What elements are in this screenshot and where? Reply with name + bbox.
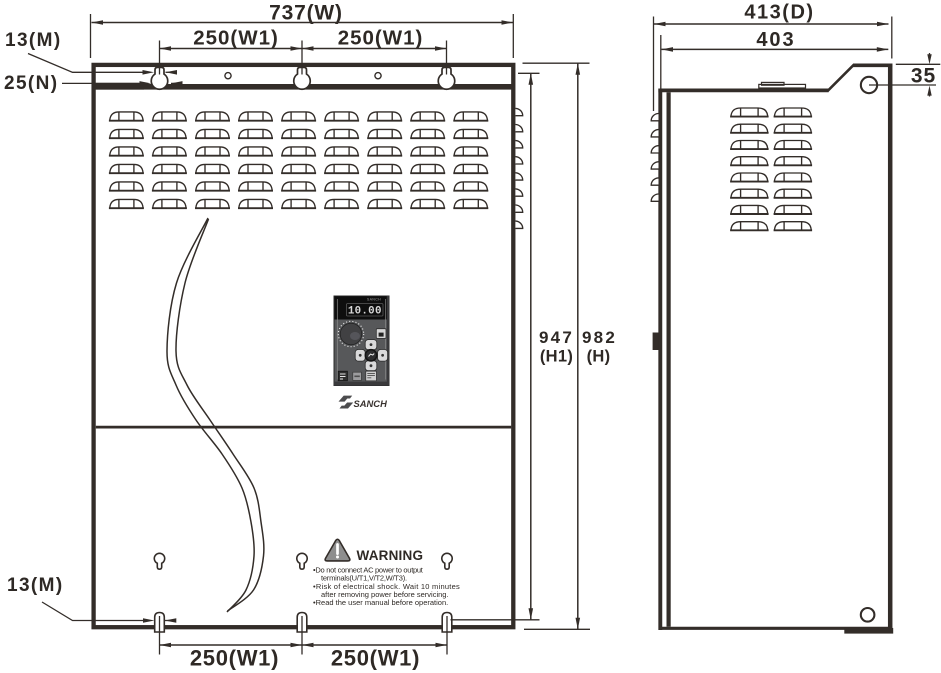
svg-text:SANCH: SANCH (354, 398, 388, 409)
svg-text:25(N): 25(N) (4, 73, 59, 94)
svg-text:35: 35 (911, 65, 936, 88)
svg-text:(H1): (H1) (540, 348, 573, 366)
svg-text:403: 403 (756, 29, 795, 51)
svg-text:after removing power before se: after removing power before servicing. (321, 590, 449, 599)
svg-text:terminals(U/T1,V/T2,W/T3).: terminals(U/T1,V/T2,W/T3). (321, 574, 407, 583)
svg-text:SANCH: SANCH (367, 298, 381, 302)
svg-text:WARNING: WARNING (357, 548, 424, 563)
svg-text:250(W1): 250(W1) (331, 646, 420, 671)
svg-text:13(M): 13(M) (5, 30, 62, 51)
svg-text:413(D): 413(D) (744, 1, 814, 23)
svg-text:737(W): 737(W) (269, 1, 343, 24)
svg-text:250(W1): 250(W1) (190, 646, 279, 671)
svg-text:250(W1): 250(W1) (193, 27, 279, 50)
svg-text:13(M): 13(M) (7, 575, 64, 596)
svg-text:250(W1): 250(W1) (338, 27, 424, 50)
svg-text:(H): (H) (587, 348, 611, 366)
svg-text:982: 982 (582, 328, 617, 347)
svg-text:10.00: 10.00 (348, 306, 382, 318)
svg-text:•Risk of electrical shock. Wai: •Risk of electrical shock. Wait 10 minut… (313, 582, 460, 591)
svg-text:•Do not connect AC power to ou: •Do not connect AC power to output (313, 565, 424, 574)
svg-text:947: 947 (539, 328, 574, 347)
svg-text:•Read the user manual before o: •Read the user manual before operation. (313, 598, 448, 607)
